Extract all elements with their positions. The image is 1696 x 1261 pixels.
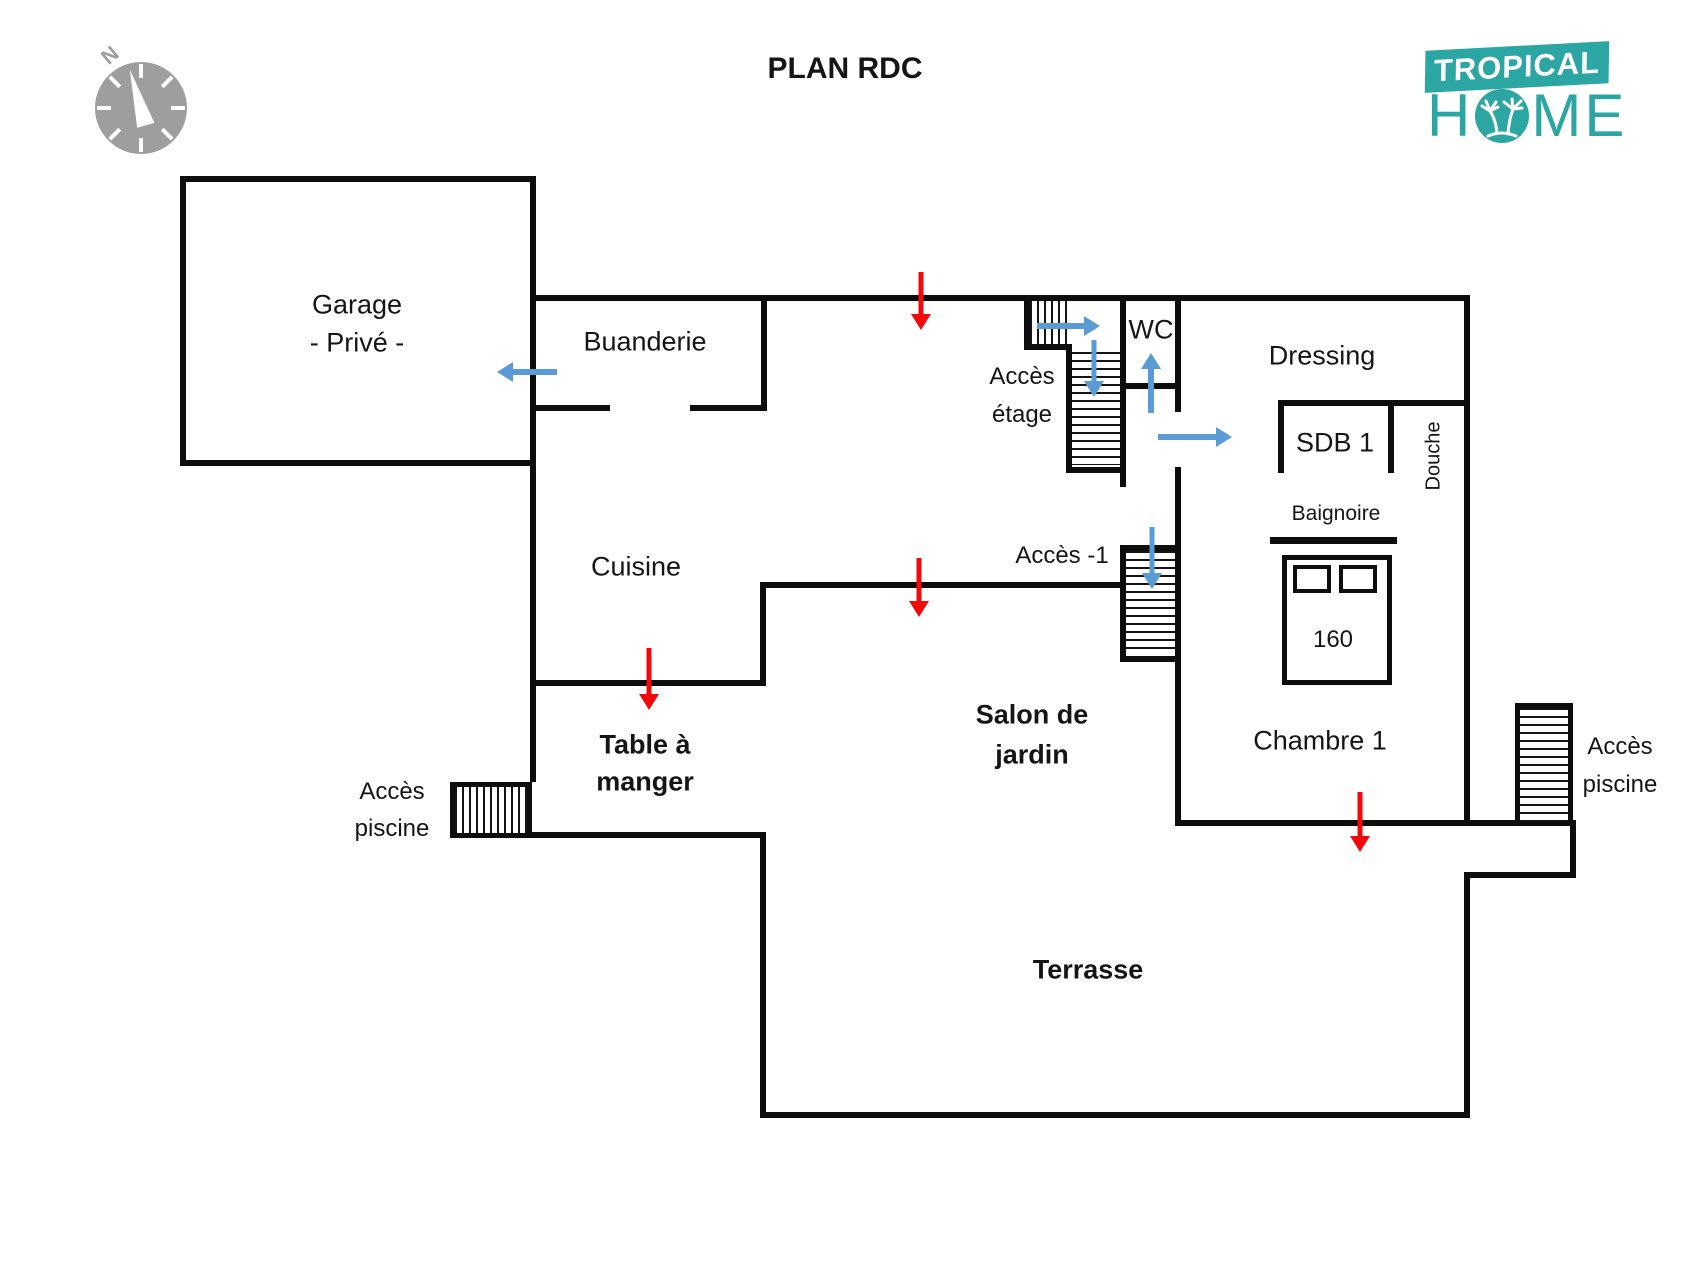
room-label-salon-l2: jardin xyxy=(995,740,1069,771)
wall-under-left-stairs xyxy=(532,832,766,838)
compass-tick xyxy=(139,138,143,152)
blue-arrow-down-etage-stairs xyxy=(1082,340,1106,397)
wall-wc-left xyxy=(1120,295,1126,487)
blue-arrow-to-dressing xyxy=(1158,425,1232,449)
red-arrow-entry-chambre1 xyxy=(1348,792,1372,852)
room-label-chambre1: Chambre 1 xyxy=(1253,726,1387,757)
blue-arrow-down-minus1 xyxy=(1140,527,1164,589)
wall-sdb-douche-divider xyxy=(1388,400,1394,473)
room-label-table-l1: Table à xyxy=(599,730,690,761)
palm-tree-icon xyxy=(1475,89,1529,143)
wall-salon-west xyxy=(760,582,766,686)
label-bed-size: 160 xyxy=(1313,626,1353,654)
room-label-table-l2: manger xyxy=(596,767,694,798)
wall-terrasse-bottom xyxy=(760,1112,1470,1118)
label-acces-minus1: Accès -1 xyxy=(1015,542,1108,570)
wall-terrasse-right xyxy=(1464,872,1470,1118)
blue-arrow-to-garage xyxy=(497,360,557,384)
label-acces-piscine-left-l2: piscine xyxy=(355,815,430,843)
wall-east xyxy=(1464,295,1470,826)
room-label-terrasse: Terrasse xyxy=(1033,955,1144,986)
wall-chambre-left xyxy=(1175,467,1181,826)
wall-step-right xyxy=(1570,820,1576,878)
wall-upper-stairs-bottom xyxy=(1024,344,1072,350)
label-acces-etage-l2: étage xyxy=(992,401,1052,429)
wall-garage-top xyxy=(180,176,536,182)
red-arrow-entry-top xyxy=(909,272,933,330)
logo-home-me: ME xyxy=(1531,86,1627,146)
room-label-dressing: Dressing xyxy=(1269,341,1376,372)
bed-160 xyxy=(1282,555,1392,685)
room-label-sdb1: SDB 1 xyxy=(1296,428,1374,459)
wall-west xyxy=(530,176,536,782)
red-arrow-entry-salon xyxy=(907,558,931,617)
red-arrow-entry-cuisine xyxy=(637,648,661,710)
compass-tick xyxy=(97,106,111,110)
logo-home-text: HME xyxy=(1427,86,1627,146)
label-acces-etage-l1: Accès xyxy=(989,363,1054,391)
wall-sdb-top xyxy=(1278,400,1470,406)
room-label-cuisine: Cuisine xyxy=(591,552,681,583)
wall-terrasse-left xyxy=(760,832,766,1118)
pillow xyxy=(1339,565,1377,593)
wall-etage-stairs-bottom xyxy=(1066,467,1126,473)
bathtub-line xyxy=(1270,537,1397,544)
tropical-home-logo: TROPICAL HME xyxy=(1421,42,1636,152)
wall-buanderie-bottom-left xyxy=(530,405,610,411)
compass-icon: N xyxy=(95,62,187,154)
wall-garage-bottom xyxy=(180,460,536,466)
wall-buanderie-right xyxy=(761,295,767,411)
room-label-salon-l1: Salon de xyxy=(976,700,1089,731)
wall-wc-right-stub xyxy=(1175,295,1181,412)
wall-salon-top xyxy=(760,582,1122,588)
wall-step-bottom xyxy=(1464,872,1576,878)
room-label-buanderie: Buanderie xyxy=(583,327,706,358)
label-baignoire: Baignoire xyxy=(1292,502,1381,526)
wall-garage-left xyxy=(180,176,186,466)
room-label-douche: Douche xyxy=(1423,422,1446,491)
blue-arrow-stairs-landing xyxy=(1037,314,1100,338)
stairs-pool-left xyxy=(450,782,532,838)
room-label-garage: Garage xyxy=(312,290,402,321)
page-title: PLAN RDC xyxy=(768,52,923,86)
compass-tick xyxy=(171,106,185,110)
floor-plan: PLAN RDC N TROPICAL HME xyxy=(0,0,1696,1261)
wall-m1-stairs-bottom xyxy=(1120,656,1181,662)
pillow xyxy=(1293,565,1331,593)
logo-home-h: H xyxy=(1427,86,1473,146)
label-acces-piscine-right-l2: piscine xyxy=(1583,771,1658,799)
room-label-wc: WC xyxy=(1129,315,1174,346)
wall-top xyxy=(530,295,1470,301)
blue-arrow-up-wc xyxy=(1139,353,1163,413)
label-acces-piscine-right-l1: Accès xyxy=(1587,733,1652,761)
wall-sdb-left-stub xyxy=(1278,400,1284,473)
wall-buanderie-bottom-right xyxy=(690,405,767,411)
room-label-garage-prive: - Privé - xyxy=(310,328,405,359)
label-acces-piscine-left-l1: Accès xyxy=(359,778,424,806)
stairs-pool-right xyxy=(1515,703,1573,826)
